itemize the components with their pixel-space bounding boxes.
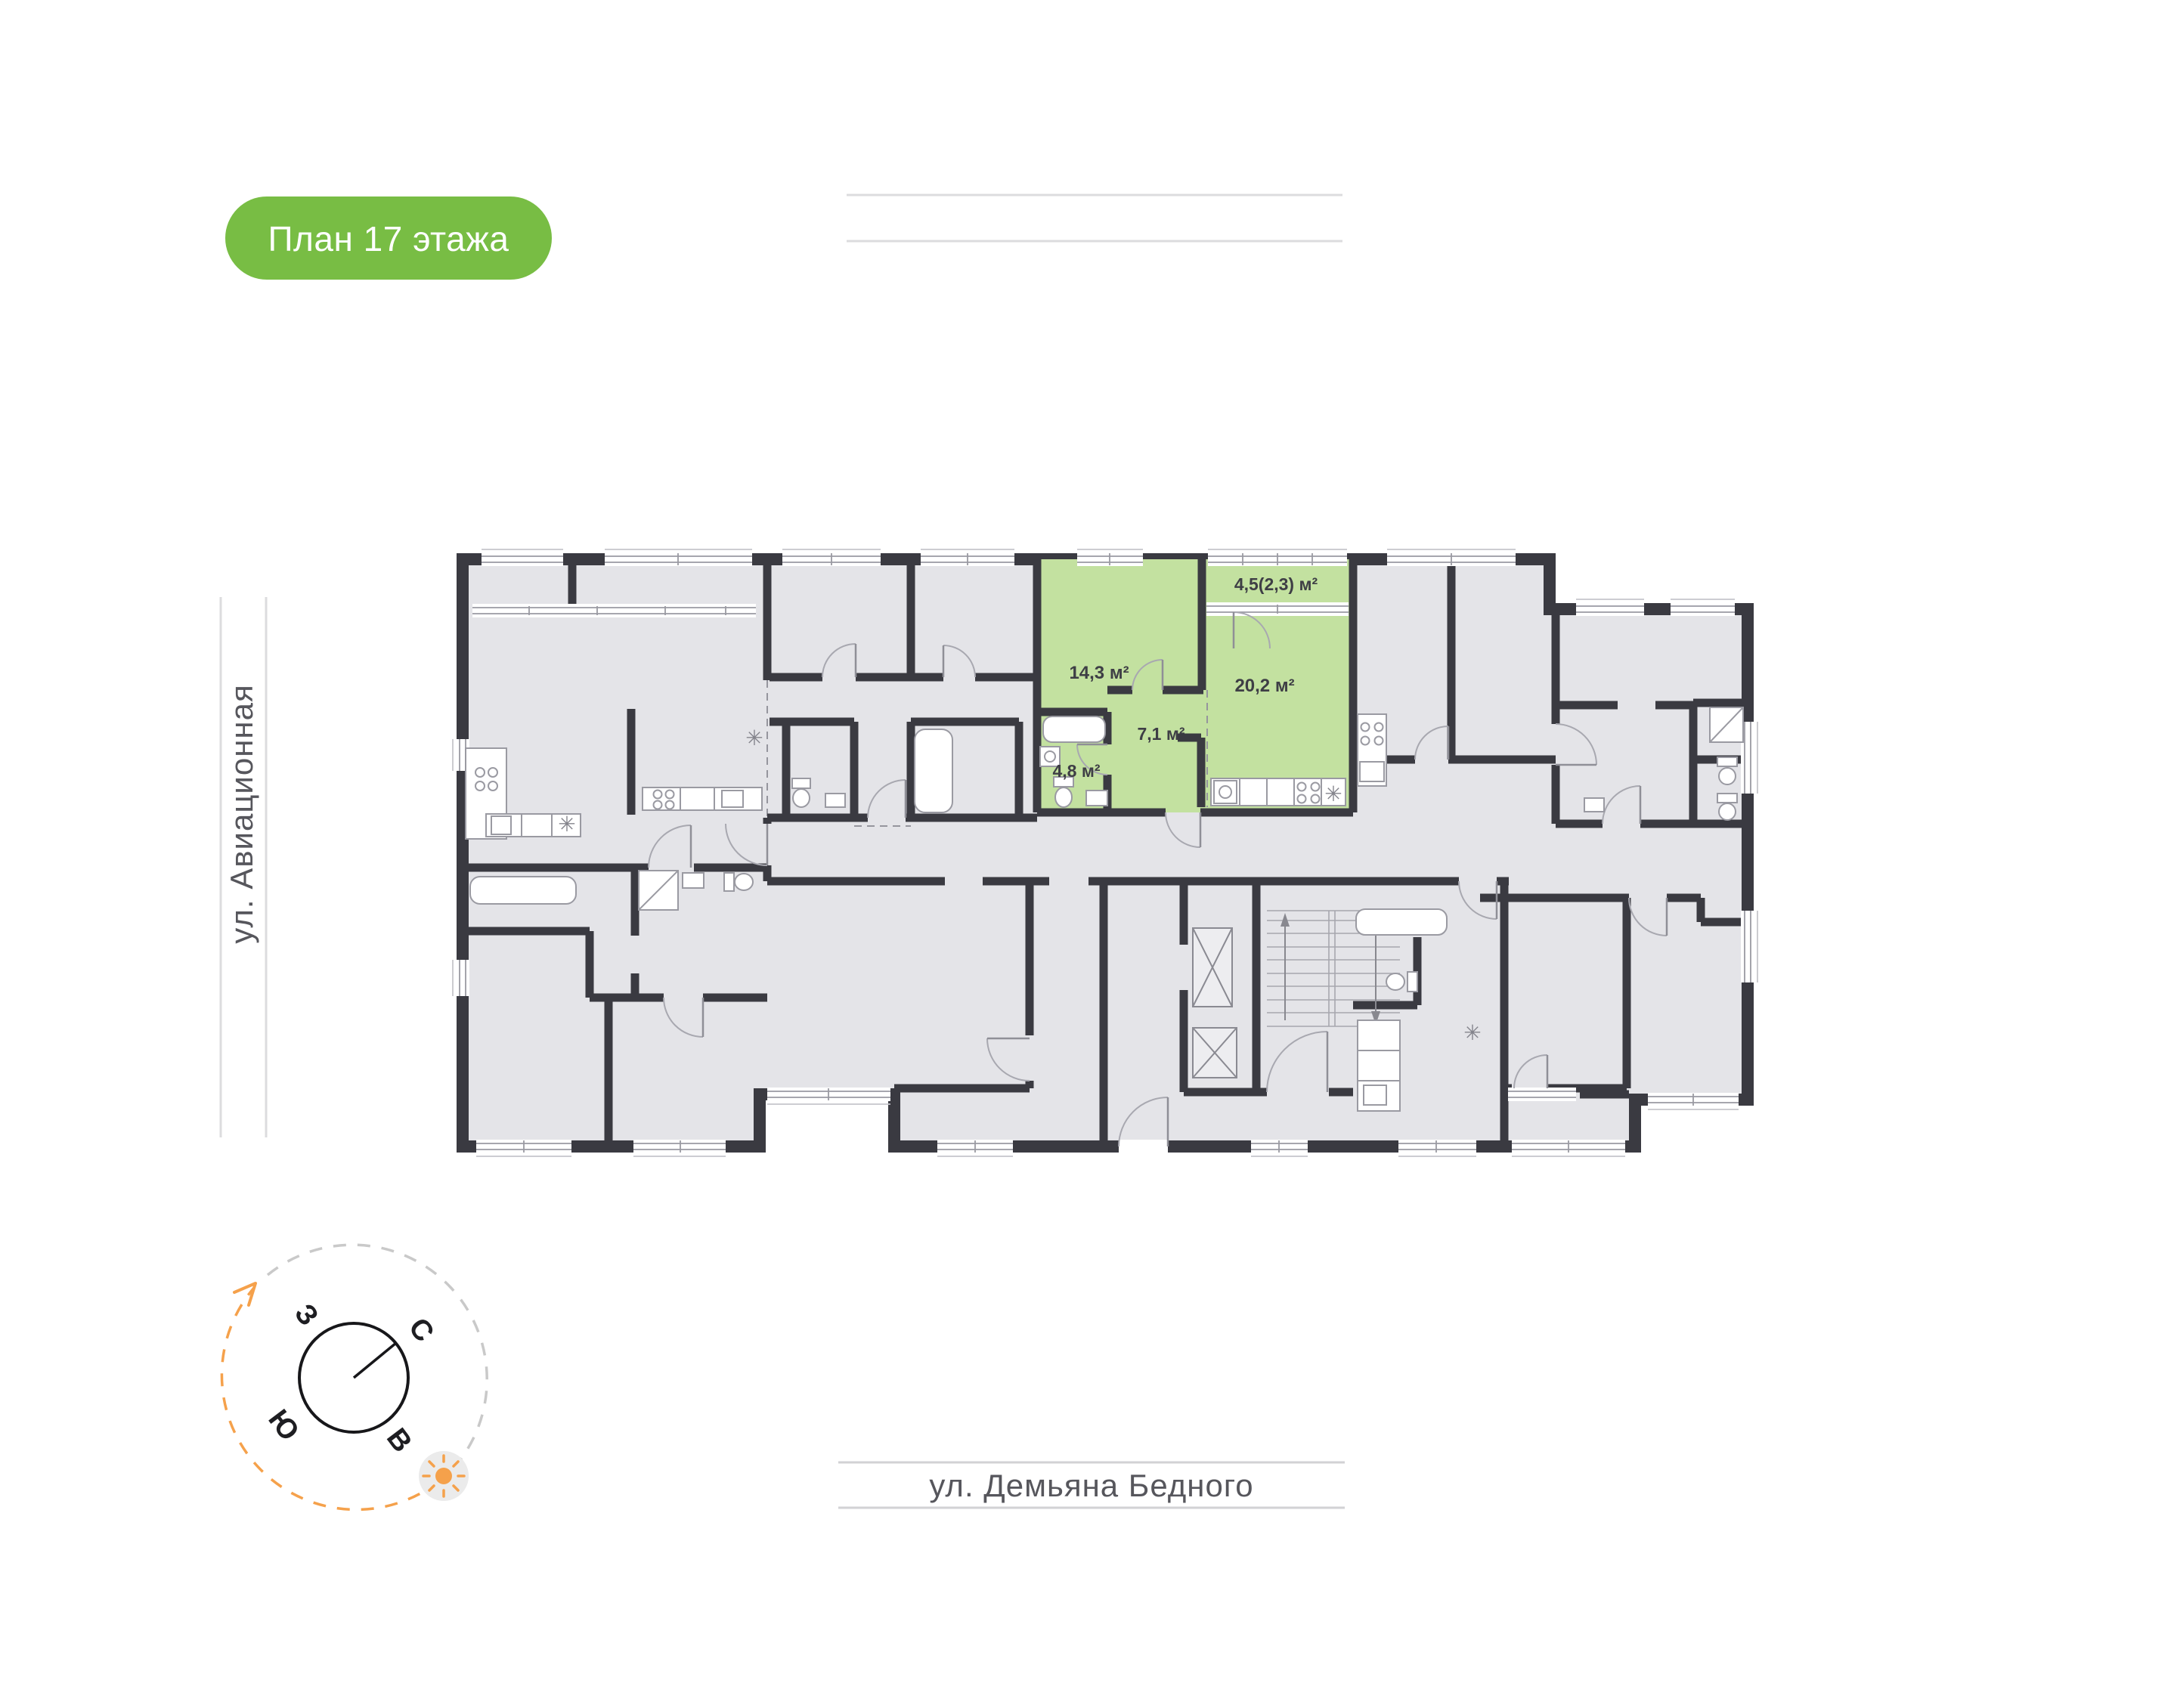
- street-left: ул. Авиационная: [221, 597, 266, 1137]
- building-plan: ✳ ✳ ✳ ✳ 14,3 м² 4,5(2,3) м² 20,2 м² 7,1 …: [453, 549, 1757, 1156]
- compass-south: Ю: [262, 1404, 305, 1447]
- compass-west: З: [288, 1298, 324, 1332]
- toilet-highlight-apartment: [1055, 787, 1072, 807]
- bathtub-middle: [915, 729, 952, 812]
- compass-arrow-icon: [234, 1283, 255, 1305]
- street-left-label: ул. Авиационная: [224, 684, 259, 943]
- toilet-right-1: [1719, 768, 1736, 784]
- toilet-left: [735, 874, 753, 890]
- sun-icon: [419, 1451, 469, 1501]
- appliance-icon: ✳: [1324, 782, 1342, 806]
- sink-highlight-apartment: [1086, 791, 1107, 806]
- floor-badge: План 17 этажа: [225, 196, 552, 280]
- compass-east: В: [380, 1422, 418, 1458]
- bathtub-core: [1356, 909, 1447, 935]
- bathtub-highlight-apartment: [1043, 716, 1105, 742]
- toilet-middle: [793, 789, 810, 807]
- compass: З С Ю В: [221, 1245, 487, 1509]
- floor-plan-page: План 17 этажа ул. Авиационная ул. Демьян…: [0, 0, 2177, 1708]
- street-bottom-label: ул. Демьяна Бедного: [929, 1468, 1253, 1503]
- floor-badge-label: План 17 этажа: [268, 219, 509, 258]
- toilet-right-2: [1719, 803, 1736, 820]
- room-label-balcony: 4,5(2,3) м²: [1234, 574, 1318, 594]
- sink-middle: [825, 794, 845, 807]
- appliance-icon: ✳: [745, 726, 763, 750]
- toilet-core: [1386, 973, 1404, 990]
- compass-north: С: [402, 1312, 440, 1348]
- room-label-living: 20,2 м²: [1234, 676, 1294, 696]
- street-bottom: ул. Демьяна Бедного: [838, 1462, 1345, 1508]
- bathtub-left: [470, 877, 576, 904]
- room-label-bathroom: 4,8 м²: [1052, 761, 1100, 781]
- room-label-bedroom: 14,3 м²: [1069, 663, 1129, 683]
- sink-left: [683, 873, 704, 888]
- sink-right: [1584, 798, 1604, 812]
- appliance-icon: ✳: [1463, 1021, 1481, 1044]
- elevator-shafts: [1193, 928, 1237, 1078]
- street-top: [847, 195, 1342, 241]
- appliance-icon: ✳: [558, 812, 575, 836]
- room-label-hallway: 7,1 м²: [1137, 724, 1184, 744]
